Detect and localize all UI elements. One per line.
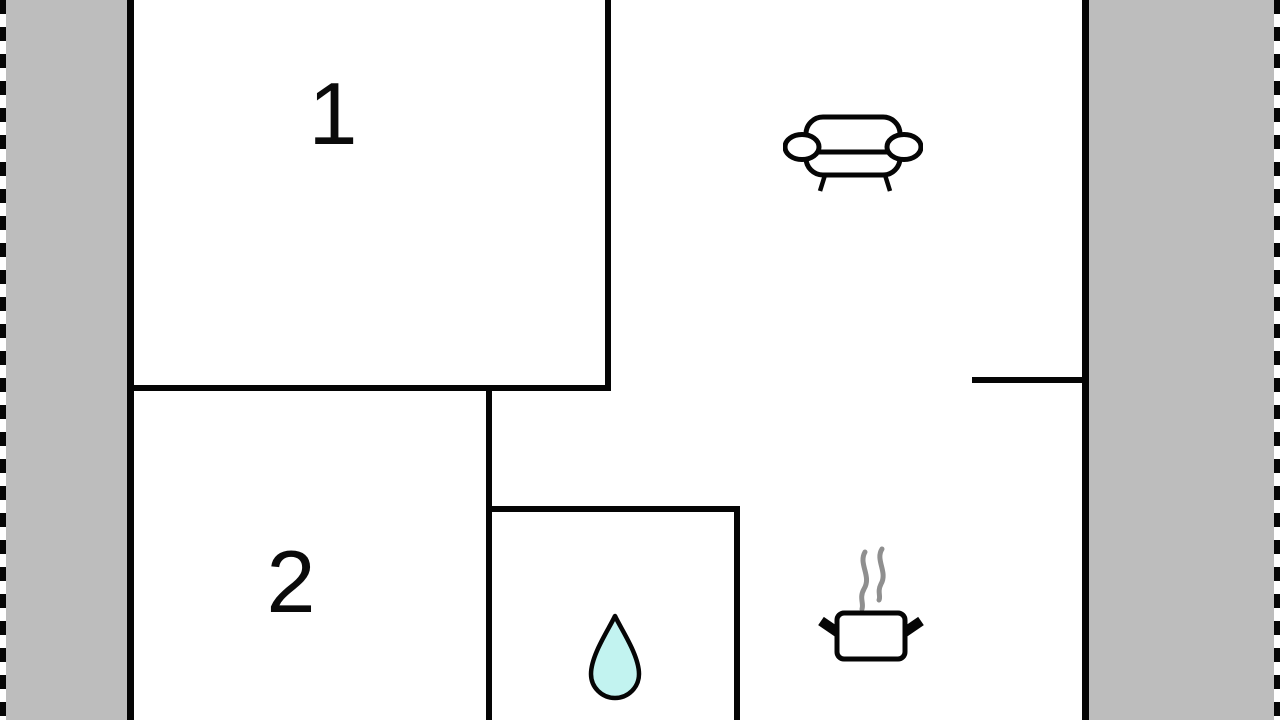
wall-room2-right xyxy=(486,385,492,720)
room-2-label: 2 xyxy=(221,532,361,632)
water-drop-icon xyxy=(586,612,644,702)
terrace-left xyxy=(6,0,127,720)
cutoff-dashed-edge-right xyxy=(1274,0,1280,720)
wall-room1-bottom xyxy=(127,385,611,391)
steam-line xyxy=(879,549,883,600)
floor-plan: 1 2 xyxy=(0,0,1280,720)
wall-exterior-left xyxy=(127,0,134,720)
room-1-label: 1 xyxy=(263,64,403,164)
wall-bathroom-right xyxy=(734,506,740,720)
wall-room1-right xyxy=(605,0,611,391)
wall-living-stub xyxy=(972,377,1082,383)
wall-exterior-right xyxy=(1082,0,1089,720)
cooking-pot-icon xyxy=(815,543,927,665)
wall-bathroom-top xyxy=(486,506,740,512)
steam-line xyxy=(862,552,867,609)
sofa-icon xyxy=(783,108,923,194)
terrace-right xyxy=(1089,0,1274,720)
